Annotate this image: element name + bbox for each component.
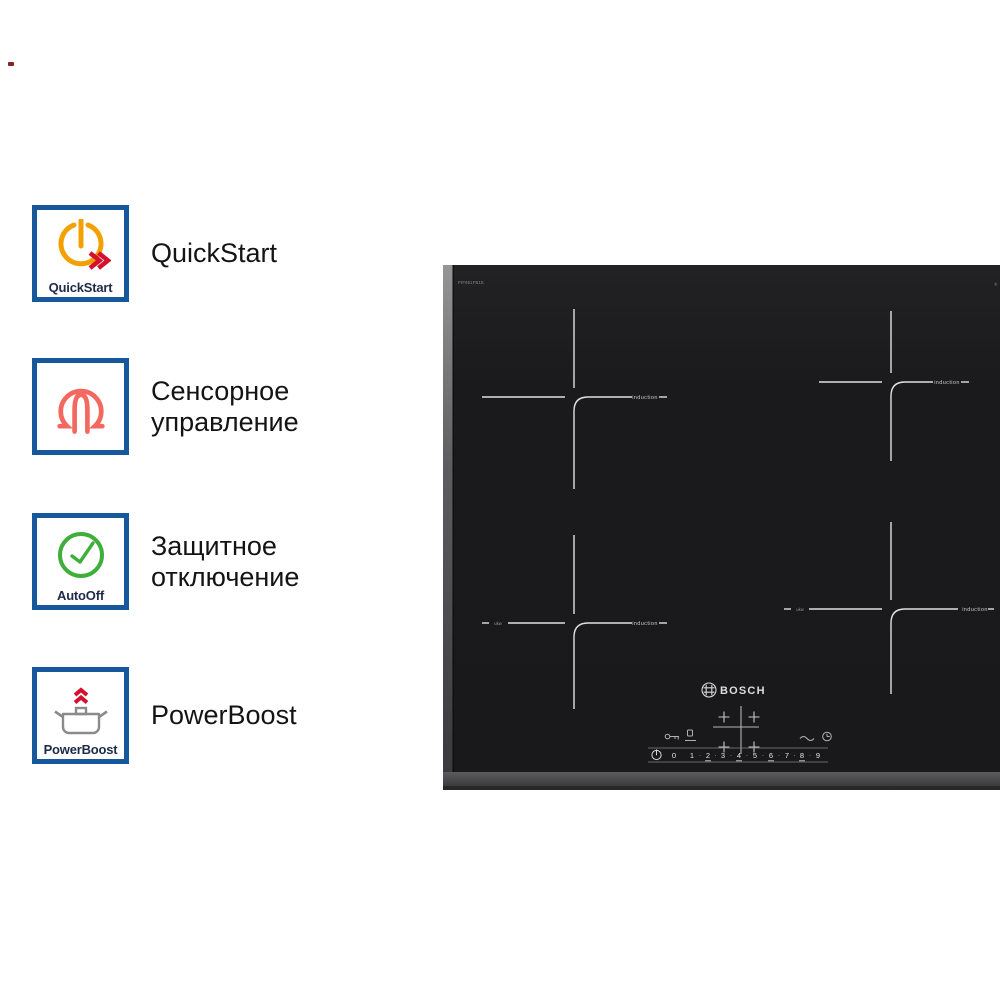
slider-number: 2 bbox=[706, 751, 710, 760]
bosch-brand-text: BOSCH bbox=[720, 685, 766, 697]
induction-label: induction bbox=[934, 380, 960, 386]
front-trim bbox=[443, 772, 1000, 786]
feature-label: PowerBoost bbox=[151, 700, 297, 731]
feature-icon-box: QuickStart bbox=[32, 205, 129, 302]
feature-label: Защитное отключение bbox=[151, 531, 341, 593]
slider-dot: · bbox=[699, 753, 701, 760]
feature-row-touch-control: Сенсорное управление bbox=[32, 358, 341, 455]
feature-row-quickstart: QuickStart QuickStart bbox=[32, 205, 277, 302]
induction-label: induction bbox=[962, 607, 988, 613]
cooktop-image: PIF651FB1E * induction induction ukw ind… bbox=[443, 265, 1000, 790]
bezel-seam bbox=[453, 265, 454, 772]
feature-label: Сенсорное управление bbox=[151, 376, 341, 438]
feature-caption: AutoOff bbox=[37, 588, 124, 603]
artifact-dot bbox=[8, 62, 14, 66]
slider-dot: · bbox=[746, 753, 748, 760]
feature-row-powerboost: PowerBoost PowerBoost bbox=[32, 667, 297, 764]
slider-dot: · bbox=[778, 753, 780, 760]
slider-number: 9 bbox=[816, 751, 820, 760]
feature-caption: QuickStart bbox=[37, 280, 124, 295]
feature-row-auto-off: AutoOff Защитное отключение bbox=[32, 513, 341, 610]
slider-number: 7 bbox=[785, 751, 789, 760]
corner-mark: * bbox=[994, 281, 998, 291]
zone-side-label: ukw bbox=[796, 607, 804, 612]
feature-caption: PowerBoost bbox=[37, 742, 124, 757]
touch-control-fingertip-icon bbox=[48, 375, 114, 439]
slider-number: 8 bbox=[800, 751, 804, 760]
slider-number: 5 bbox=[753, 751, 757, 760]
induction-label: induction bbox=[632, 395, 658, 401]
powerboost-pot-icon bbox=[50, 681, 112, 739]
slider-dot: · bbox=[793, 753, 795, 760]
feature-icon-box: PowerBoost bbox=[32, 667, 129, 764]
slider-dot: · bbox=[762, 753, 764, 760]
slider-dot: · bbox=[730, 753, 732, 760]
slider-number: 3 bbox=[721, 751, 725, 760]
induction-label: induction bbox=[632, 621, 658, 627]
quickstart-power-icon bbox=[51, 219, 111, 277]
model-label: PIF651FB1E bbox=[458, 280, 484, 285]
slider-number: 6 bbox=[769, 751, 773, 760]
slider-dot: · bbox=[809, 753, 811, 760]
zone-side-label: ukw bbox=[494, 621, 502, 626]
auto-off-clock-icon bbox=[51, 528, 111, 584]
feature-label: QuickStart bbox=[151, 238, 277, 269]
slider-dot: · bbox=[714, 753, 716, 760]
trim-shadow bbox=[443, 786, 1000, 790]
left-bezel bbox=[443, 265, 453, 772]
bosch-logo: BOSCH bbox=[702, 683, 766, 697]
slider-number: 4 bbox=[737, 751, 741, 760]
slider-number: 0 bbox=[672, 751, 676, 760]
feature-icon-box: AutoOff bbox=[32, 513, 129, 610]
feature-icon-box bbox=[32, 358, 129, 455]
slider-number: 1 bbox=[690, 751, 694, 760]
